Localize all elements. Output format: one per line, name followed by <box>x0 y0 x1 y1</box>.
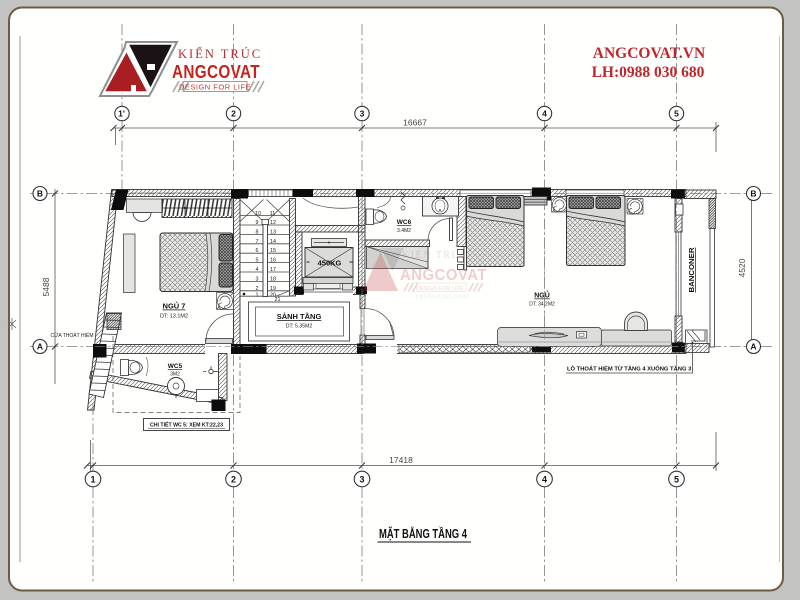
svg-text:5488: 5488 <box>41 277 51 296</box>
svg-text:DT: 34.2M2: DT: 34.2M2 <box>529 302 555 308</box>
svg-text:4: 4 <box>256 267 259 273</box>
svg-text:SẢNH TẦNG: SẢNH TẦNG <box>277 311 322 321</box>
svg-text:4: 4 <box>542 109 547 119</box>
svg-text:3: 3 <box>359 475 364 485</box>
svg-text:17418: 17418 <box>389 455 413 465</box>
svg-text:DESIGN FOR LIFE: DESIGN FOR LIFE <box>416 286 464 292</box>
svg-text:1': 1' <box>118 109 125 119</box>
svg-text:1: 1 <box>256 293 259 299</box>
svg-text:MẶT BẰNG TẦNG 4: MẶT BẰNG TẦNG 4 <box>379 526 468 541</box>
svg-text:10: 10 <box>255 211 261 217</box>
svg-text:3: 3 <box>256 276 259 282</box>
svg-text:17: 17 <box>270 267 276 273</box>
svg-text:ANGCOVAT: ANGCOVAT <box>400 267 487 284</box>
svg-text:15: 15 <box>270 248 276 254</box>
svg-text:NGỦ: NGỦ <box>534 291 550 300</box>
svg-text:16: 16 <box>270 258 276 264</box>
svg-text:A: A <box>37 342 43 352</box>
svg-text:11: 11 <box>270 211 276 217</box>
svg-text:3M2: 3M2 <box>170 372 180 378</box>
svg-text:KIẾN TRÚC: KIẾN TRÚC <box>402 248 468 261</box>
svg-text:14: 14 <box>270 239 276 245</box>
svg-text:KIENTRUCANGCOVAT: KIENTRUCANGCOVAT <box>416 295 469 301</box>
svg-text:B: B <box>750 189 756 199</box>
svg-text:7: 7 <box>256 239 259 245</box>
svg-text:8: 8 <box>256 229 259 235</box>
svg-text:4: 4 <box>542 475 547 485</box>
svg-text:5: 5 <box>674 475 679 485</box>
svg-text:18: 18 <box>270 276 276 282</box>
svg-text:DESIGN FOR LIFE: DESIGN FOR LIFE <box>179 83 251 92</box>
svg-text:3: 3 <box>360 109 365 119</box>
svg-text:450KG: 450KG <box>318 259 342 268</box>
svg-text:2: 2 <box>231 475 236 485</box>
svg-text:CHI TIẾT WC 5: XEM KT:22,23: CHI TIẾT WC 5: XEM KT:22,23 <box>150 422 223 429</box>
svg-text:WC5: WC5 <box>168 363 183 370</box>
svg-text:KIẾN TRÚC: KIẾN TRÚC <box>178 46 262 61</box>
svg-text:LH:0988 030 680: LH:0988 030 680 <box>592 64 705 81</box>
svg-text:NGỦ 7: NGỦ 7 <box>163 302 186 311</box>
svg-text:3.4M2: 3.4M2 <box>397 228 411 234</box>
svg-text:DT: 13.1M2: DT: 13.1M2 <box>160 314 188 320</box>
svg-text:LỖ THOÁT HIỂM TỪ TẦNG 4 XUỐNG: LỖ THOÁT HIỂM TỪ TẦNG 4 XUỐNG TẦNG 3 <box>567 366 692 373</box>
svg-text:BANCONER: BANCONER <box>689 248 696 293</box>
svg-text:WC6: WC6 <box>397 219 412 226</box>
svg-text:5: 5 <box>674 109 679 119</box>
svg-text:ANGCOVAT.VN: ANGCOVAT.VN <box>593 45 705 62</box>
svg-text:ANGCOVAT: ANGCOVAT <box>172 62 260 82</box>
svg-text:CỬA THOÁT HIỂM: CỬA THOÁT HIỂM <box>51 332 94 339</box>
svg-text:5: 5 <box>256 258 259 264</box>
svg-text:12: 12 <box>270 220 276 226</box>
svg-text:16667: 16667 <box>403 118 427 128</box>
svg-text:DT: 5.35M2: DT: 5.35M2 <box>286 324 313 330</box>
svg-text:2: 2 <box>256 286 259 292</box>
svg-text:2: 2 <box>231 109 236 119</box>
svg-text:B: B <box>37 189 43 199</box>
svg-text:9: 9 <box>256 220 259 226</box>
svg-text:6: 6 <box>256 248 259 254</box>
svg-text:19: 19 <box>270 286 276 292</box>
svg-text:A: A <box>750 342 756 352</box>
svg-text:1: 1 <box>90 475 95 485</box>
svg-text:4520: 4520 <box>737 258 747 277</box>
svg-text:13: 13 <box>270 229 276 235</box>
